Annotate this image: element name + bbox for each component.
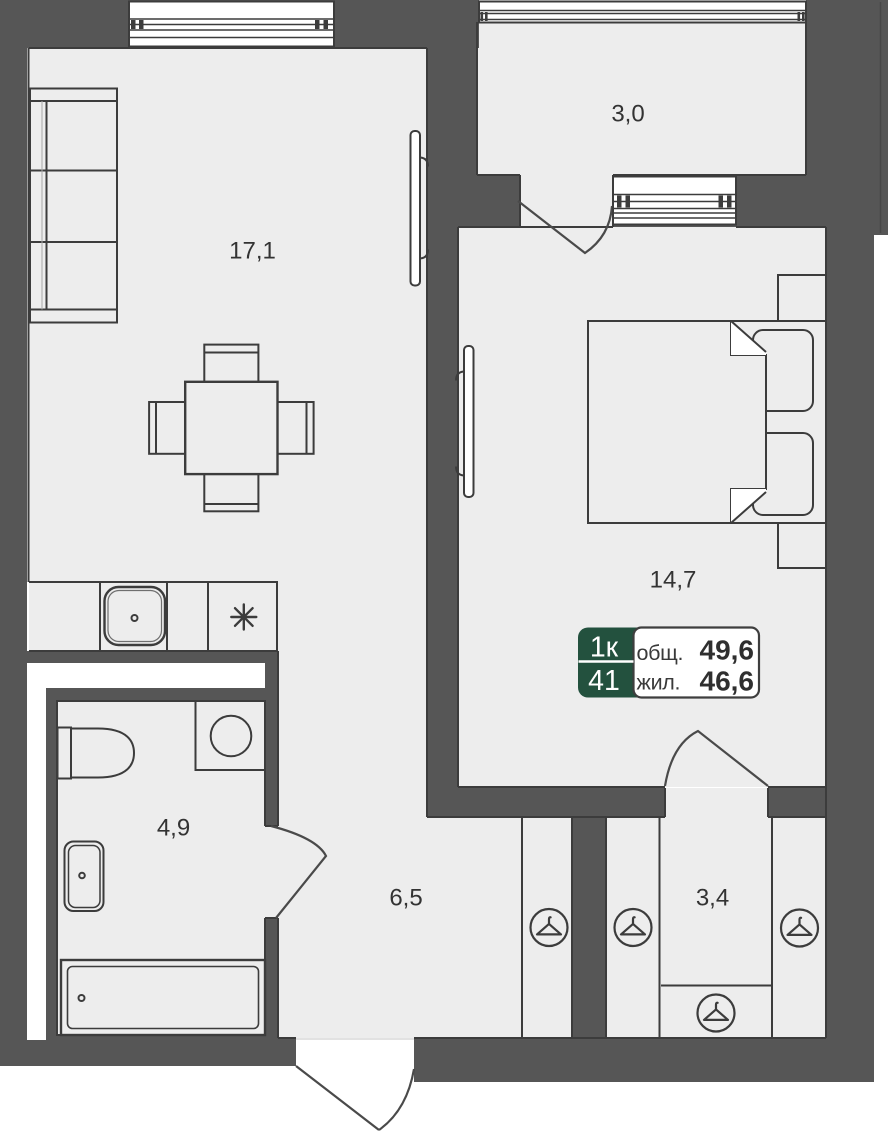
svg-text:14,7: 14,7 <box>650 567 697 594</box>
svg-text:46,6: 46,6 <box>700 666 755 697</box>
svg-text:41: 41 <box>588 665 620 697</box>
svg-text:жил.: жил. <box>637 671 681 695</box>
svg-text:3,4: 3,4 <box>696 885 729 912</box>
svg-text:4,9: 4,9 <box>157 815 190 842</box>
svg-text:6,5: 6,5 <box>389 885 422 912</box>
svg-text:1к: 1к <box>590 632 619 664</box>
svg-text:3,0: 3,0 <box>611 101 644 128</box>
svg-text:общ.: общ. <box>637 641 684 665</box>
svg-text:49,6: 49,6 <box>700 635 755 666</box>
svg-text:17,1: 17,1 <box>229 238 276 265</box>
